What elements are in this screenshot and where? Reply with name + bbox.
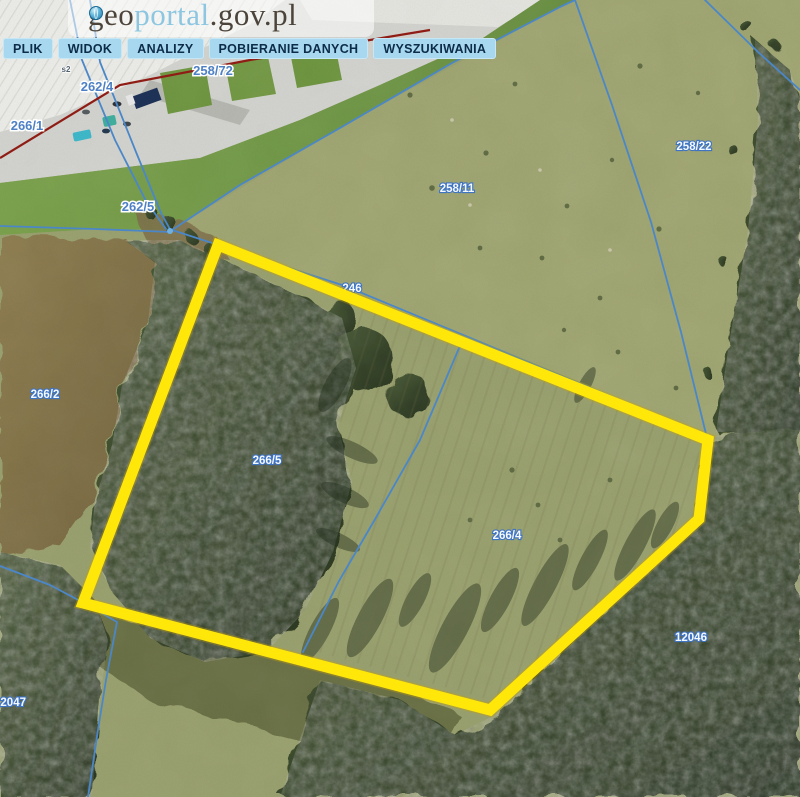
parcel-label: 258/22 — [676, 141, 711, 153]
parcel-label: 262/4 — [81, 79, 114, 94]
geoportal-logo[interactable]: geoportal.gov.pl — [88, 0, 297, 33]
parcel-label: 258/11 — [440, 183, 475, 195]
parcel-label: s2 — [62, 65, 71, 74]
menu-item-wyszukiwania[interactable]: WYSZUKIWANIA — [373, 38, 496, 59]
menu-item-widok[interactable]: WIDOK — [58, 38, 123, 59]
menu-bar: PLIK WIDOK ANALIZY POBIERANIE DANYCH WYS… — [3, 38, 496, 59]
globe-icon — [89, 6, 103, 20]
aerial-map[interactable]: s2 258/72 262/4 266/1 262/5 258/11 258/2… — [0, 0, 800, 797]
parcel-label: 266/5 — [253, 455, 282, 467]
parcel-label: 262/5 — [122, 199, 155, 214]
parcel-label: 266/4 — [493, 530, 522, 542]
logo-text-gov: .gov.pl — [210, 0, 298, 32]
geoportal-map-view[interactable]: s2 258/72 262/4 266/1 262/5 258/11 258/2… — [0, 0, 800, 797]
boundary-node — [167, 228, 173, 234]
menu-item-analizy[interactable]: ANALIZY — [127, 38, 203, 59]
parcel-label: 12047 — [0, 697, 26, 709]
terrain — [0, 0, 800, 797]
parcel-label: 266/1 — [11, 118, 44, 133]
parcel-label: 12046 — [675, 632, 707, 644]
menu-item-pobieranie-danych[interactable]: POBIERANIE DANYCH — [209, 38, 369, 59]
logo-text-portal: portal — [134, 0, 209, 32]
menu-item-plik[interactable]: PLIK — [3, 38, 53, 59]
parcel-label: 258/72 — [193, 63, 233, 78]
parcel-label: 266/2 — [31, 389, 60, 401]
terrain-grain — [0, 0, 800, 797]
